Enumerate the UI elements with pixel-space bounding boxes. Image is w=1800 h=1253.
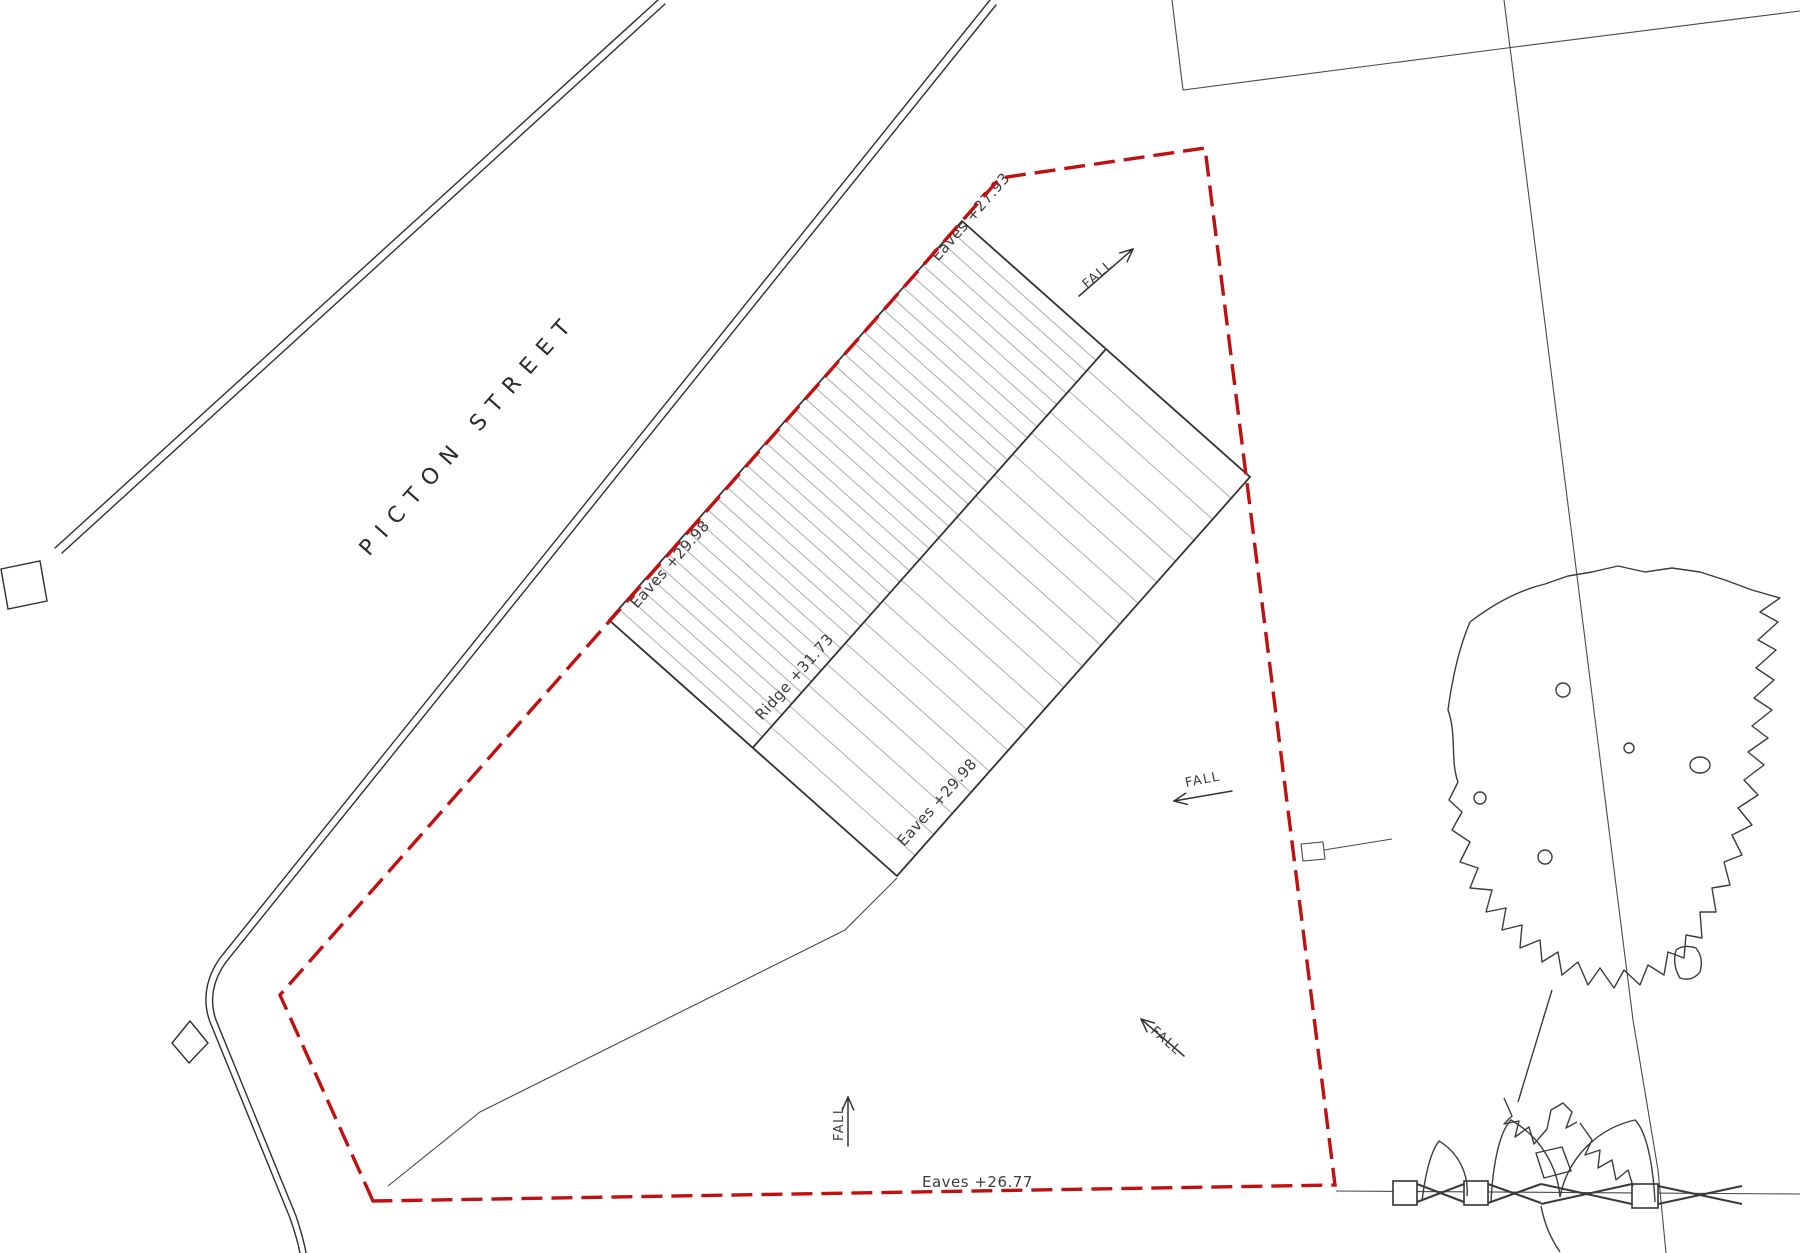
shrub-stem — [1541, 1206, 1560, 1252]
fall-label-1: FALL — [1080, 257, 1117, 292]
eaves-upper-label: Eaves +29.98 — [627, 517, 714, 612]
fence-and-shrubs — [1336, 1098, 1800, 1252]
yard-edge-line — [388, 878, 897, 1186]
eaves-rear-label: Eaves +26.77 — [922, 1173, 1033, 1191]
plot-boundary-top-right — [1172, 0, 1800, 90]
fall-label-4: FALL — [832, 1105, 847, 1141]
eaves-boundary-label: Eaves +27.93 — [927, 169, 1013, 264]
boundary-gate-tab — [1301, 839, 1392, 861]
street-end-marker — [1, 561, 47, 609]
site-plan-sheet: PICTON STREET Eaves +27.93 Eaves +29.98 … — [0, 0, 1800, 1253]
site-plan-drawing: PICTON STREET Eaves +27.93 Eaves +29.98 … — [0, 0, 1800, 1253]
roof-hatch-lower — [771, 370, 1231, 855]
fall-label-3: FALL — [1147, 1024, 1184, 1059]
tree-canopy — [1448, 566, 1780, 1102]
fence-post — [1393, 1181, 1417, 1205]
shrub-outline — [1504, 1098, 1577, 1144]
shrub-outline — [1536, 1147, 1571, 1178]
kerb-marker-diamond — [172, 1021, 208, 1063]
roof-hatch-upper — [619, 232, 1096, 737]
fall-label-2: FALL — [1184, 769, 1222, 791]
street-kerb-left — [1, 0, 665, 609]
plot-boundary-right-diagonal — [1504, 0, 1666, 1253]
fall-arrows — [842, 249, 1232, 1146]
street-name-label: PICTON STREET — [355, 308, 583, 561]
shrub-outline — [1580, 1123, 1633, 1186]
eaves-lower-label: Eaves +29.98 — [894, 755, 981, 850]
street-kerb-right — [206, 0, 996, 1253]
roof-ridge-line — [753, 349, 1107, 748]
